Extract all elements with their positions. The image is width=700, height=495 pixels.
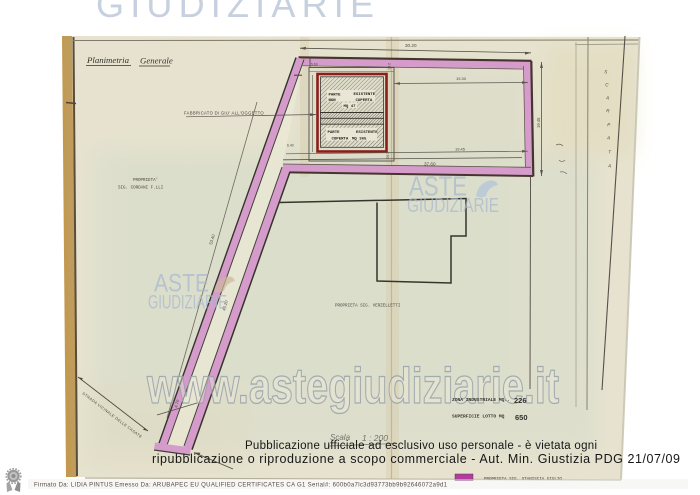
svg-text:GIUDIZIARIE: GIUDIZIARIE xyxy=(148,293,227,314)
svg-text:30.20: 30.20 xyxy=(405,43,417,48)
svg-text:37.60: 37.60 xyxy=(424,162,436,167)
svg-text:Pubblicazione ufficiale ad esc: Pubblicazione ufficiale ad esclusivo uso… xyxy=(245,440,597,452)
svg-text:PARTE: PARTE xyxy=(329,93,342,97)
svg-text:2.60: 2.60 xyxy=(387,63,391,70)
svg-text:226: 226 xyxy=(514,396,527,405)
svg-text:6.40: 6.40 xyxy=(287,144,294,148)
svg-text:5.60: 5.60 xyxy=(311,63,318,67)
svg-text:ripubblicazione o riproduzione: ripubblicazione o riproduzione a scopo c… xyxy=(152,452,680,466)
svg-text:SUPERFICIE LOTTO MQ: SUPERFICIE LOTTO MQ xyxy=(452,414,505,420)
svg-text:SIG. CORDANI F.LLI: SIG. CORDANI F.LLI xyxy=(118,187,164,191)
svg-text:MQ 47: MQ 47 xyxy=(344,105,357,109)
svg-text:PROPRIETA': PROPRIETA' xyxy=(133,178,158,183)
svg-text:FABBRICATO DI GIU' ALL'OGGE: FABBRICATO DI GIU' ALL'OGGETTO xyxy=(184,111,264,116)
svg-text:COPERTA: COPERTA xyxy=(332,138,349,142)
svg-text:COPERTA: COPERTA xyxy=(356,99,373,103)
svg-text:PARTE: PARTE xyxy=(328,131,341,135)
svg-text:PROPRIETA SIG. VERZELLETTI: PROPRIETA SIG. VERZELLETTI xyxy=(335,305,401,309)
svg-text:GIUDIZIARIE: GIUDIZIARIE xyxy=(96,0,374,25)
svg-text:650: 650 xyxy=(515,413,528,422)
svg-text:19.45: 19.45 xyxy=(455,147,466,152)
svg-text:GIUDIZIARIE: GIUDIZIARIE xyxy=(407,194,499,217)
svg-text:19.30: 19.30 xyxy=(456,76,467,81)
svg-text:Firmato Da: LIDIA PINTUS Emess: Firmato Da: LIDIA PINTUS Emesso Da: ARUB… xyxy=(34,483,448,489)
svg-text:ZONA INDUSTRIALE MQ..: ZONA INDUSTRIALE MQ.. xyxy=(452,397,510,403)
svg-text:ESISTENTE: ESISTENTE xyxy=(354,93,376,97)
svg-text:Generale: Generale xyxy=(140,56,173,66)
svg-text:www.astegiudiziarie.it: www.astegiudiziarie.it xyxy=(146,358,559,414)
svg-text:19.45: 19.45 xyxy=(536,117,541,128)
svg-text:MQ 365: MQ 365 xyxy=(352,138,367,142)
svg-text:ESISTENTE: ESISTENTE xyxy=(356,131,378,135)
svg-text:NON: NON xyxy=(329,99,337,103)
svg-text:Planimetria: Planimetria xyxy=(86,55,130,65)
